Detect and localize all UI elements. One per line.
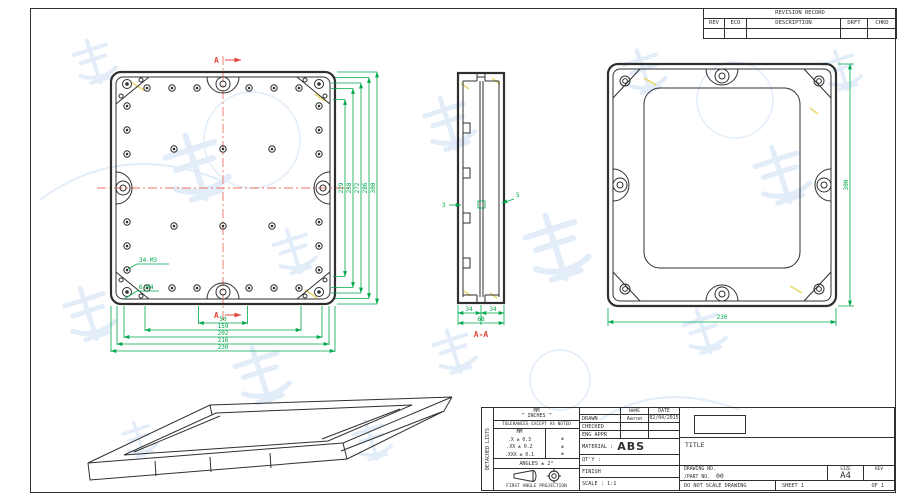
finish-row: FINISH xyxy=(580,466,679,478)
hole-label-m4: 6-M4 xyxy=(124,284,159,299)
svg-text:68: 68 xyxy=(477,316,485,323)
sheet-label: SHEET 1 xyxy=(782,483,804,489)
back-view-highlights xyxy=(644,78,818,293)
title-cell: TITLE xyxy=(680,438,894,466)
side-label: DETACHED LISTS xyxy=(485,423,491,475)
angles-tolerance: ANGLES ± 2° xyxy=(494,459,579,469)
scale-warning-row: DO NOT SCALE DRAWING SHEET 1 OF 1 xyxy=(680,481,894,490)
of-label: OF 1 xyxy=(872,483,885,489)
qty-row: QT'Y : xyxy=(580,455,679,466)
section-label: A-A xyxy=(474,330,489,339)
drawn-name: Aaron xyxy=(620,415,648,422)
tolerance-row: .X ± 0.3 xyxy=(494,437,545,445)
tolerance-mark: ± xyxy=(546,451,579,459)
part-no-value: 00 xyxy=(716,473,724,480)
revision-title: REVISION RECORD xyxy=(704,9,896,18)
drawing-no-row: DRAWING NO. /PART NO. 00 SIZE A4 REV xyxy=(680,466,894,481)
size-cell: SIZE A4 xyxy=(828,466,864,480)
material-row: MATERIAL : ABS xyxy=(580,439,679,455)
cone-icon xyxy=(513,470,539,482)
drawing-sheet: REVISION RECORD REV ECO DESCRIPTION DRFT… xyxy=(0,0,900,500)
units-row: ← MM INCHES → xyxy=(494,408,579,421)
back-view-width-dim: 230 xyxy=(608,308,836,326)
checked-label: CHECKED xyxy=(580,423,620,430)
title-block-side-cell: DETACHED LISTS xyxy=(482,408,494,490)
drawn-label: DRAWN xyxy=(580,415,620,422)
tolerance-table: MM .X ± 0.3 .XX ± 0.2 .XXX ± 0.1 ± ± ± xyxy=(494,429,579,459)
material-value: ABS xyxy=(617,440,645,453)
tolerance-panel: ← MM INCHES → TOLERANCES EXCEPT AS NOTED… xyxy=(494,408,580,490)
do-not-scale-label: DO NOT SCALE DRAWING xyxy=(680,481,776,490)
svg-text:230: 230 xyxy=(717,314,728,321)
top-view-centerlines xyxy=(97,56,351,320)
svg-text:286: 286 xyxy=(362,182,369,193)
revision-col-chkd: CHKD xyxy=(867,19,896,28)
date-header: DATE xyxy=(648,408,679,414)
title-block: DETACHED LISTS ← MM INCHES → TOLERANCES … xyxy=(481,407,895,491)
svg-text:202: 202 xyxy=(218,330,229,337)
top-view-highlights xyxy=(131,82,325,298)
svg-text:229: 229 xyxy=(338,182,345,193)
target-icon xyxy=(547,469,561,483)
back-view-lid-recess xyxy=(644,88,800,268)
svg-text:159: 159 xyxy=(218,323,229,330)
tolerance-row: .XX ± 0.2 xyxy=(494,444,545,452)
arrow-left-icon: ← xyxy=(521,411,524,417)
checked-row: CHECKED xyxy=(580,423,679,431)
section-view: 3 5 34 34 68 A-A xyxy=(430,55,540,355)
eng-appr-label: ENG APPR xyxy=(580,431,620,438)
finish-label: FINISH xyxy=(582,469,601,475)
svg-text:300: 300 xyxy=(843,179,850,190)
part-no-label: /PART NO. xyxy=(684,474,710,481)
svg-text:300: 300 xyxy=(370,182,377,193)
tolerance-note: TOLERANCES EXCEPT AS NOTED xyxy=(494,421,579,429)
arrow-right-icon: → xyxy=(549,411,552,417)
revision-col-drft: DRFT xyxy=(840,19,867,28)
revision-col-eco: ECO xyxy=(724,19,746,28)
top-view: A A 34-M3 6-M4 50 159 202 216 23 xyxy=(95,50,395,380)
units-inches: INCHES xyxy=(527,414,545,420)
tolerance-row: .XXX ± 0.1 xyxy=(494,452,545,460)
drawing-no-label: DRAWING NO. xyxy=(684,466,827,473)
tolerance-mark: ± xyxy=(546,444,579,452)
svg-text:230: 230 xyxy=(218,344,229,351)
back-view-outline xyxy=(608,64,836,306)
isometric-body xyxy=(88,397,452,480)
svg-text:34: 34 xyxy=(465,306,473,313)
svg-text:5: 5 xyxy=(516,192,520,199)
projection-label: FIRST ANGLE PROJECTION xyxy=(506,483,567,490)
section-marker-bottom: A xyxy=(214,311,241,320)
back-view: 230 300 xyxy=(590,48,890,348)
revision-col-rev: REV xyxy=(704,19,724,28)
svg-text:272: 272 xyxy=(354,182,361,193)
revision-empty-row xyxy=(704,28,896,38)
back-view-corner-bosses xyxy=(613,69,831,301)
logo-area xyxy=(680,408,894,438)
svg-text:34-M3: 34-M3 xyxy=(139,257,157,264)
isometric-view xyxy=(60,385,480,497)
projection-cell: FIRST ANGLE PROJECTION xyxy=(494,469,579,490)
svg-text:34: 34 xyxy=(489,306,497,313)
name-header: NAME xyxy=(620,408,648,414)
material-label: MATERIAL : xyxy=(582,444,613,450)
logo-box xyxy=(694,415,746,434)
eng-appr-row: ENG APPR xyxy=(580,431,679,439)
approval-panel: NAME DATE DRAWN Aaron 02/04/2015 CHECKED… xyxy=(580,408,680,490)
title-panel: TITLE DRAWING NO. /PART NO. 00 SIZE A4 R… xyxy=(680,408,894,490)
size-value: A4 xyxy=(828,472,863,481)
svg-text:258: 258 xyxy=(346,182,353,193)
section-view-bottom-dims: 34 34 68 xyxy=(458,305,504,325)
revision-table: REVISION RECORD REV ECO DESCRIPTION DRFT… xyxy=(703,8,897,39)
top-view-right-dims: 229 258 272 286 300 xyxy=(331,72,377,304)
revision-col-description: DESCRIPTION xyxy=(746,19,840,28)
section-marker-top: A xyxy=(214,56,241,65)
drawn-row: DRAWN Aaron 02/04/2015 xyxy=(580,415,679,423)
svg-text:50: 50 xyxy=(219,316,227,323)
rev-cell: REV xyxy=(864,466,894,480)
back-view-mid-bosses xyxy=(613,69,831,301)
svg-text:216: 216 xyxy=(218,337,229,344)
hole-label-m3: 34-M3 xyxy=(128,257,169,269)
approval-header-row: NAME DATE xyxy=(580,408,679,415)
section-view-wall-dims: 3 5 xyxy=(442,192,520,209)
scale-row: SCALE : 1:1 xyxy=(580,478,679,490)
svg-text:3: 3 xyxy=(442,202,446,209)
svg-text:A: A xyxy=(214,311,219,320)
drawn-date: 02/04/2015 xyxy=(648,415,679,422)
section-view-body xyxy=(458,73,504,303)
svg-text:6-M4: 6-M4 xyxy=(139,284,154,291)
scale-label: SCALE : 1:1 xyxy=(582,481,616,487)
tolerance-mark: ± xyxy=(546,436,579,444)
revision-header-row: REV ECO DESCRIPTION DRFT CHKD xyxy=(704,18,896,28)
back-view-height-dim: 300 xyxy=(838,64,854,306)
qty-label: QT'Y : xyxy=(582,457,601,463)
svg-text:A: A xyxy=(214,56,219,65)
tolerance-header: MM xyxy=(494,429,545,437)
